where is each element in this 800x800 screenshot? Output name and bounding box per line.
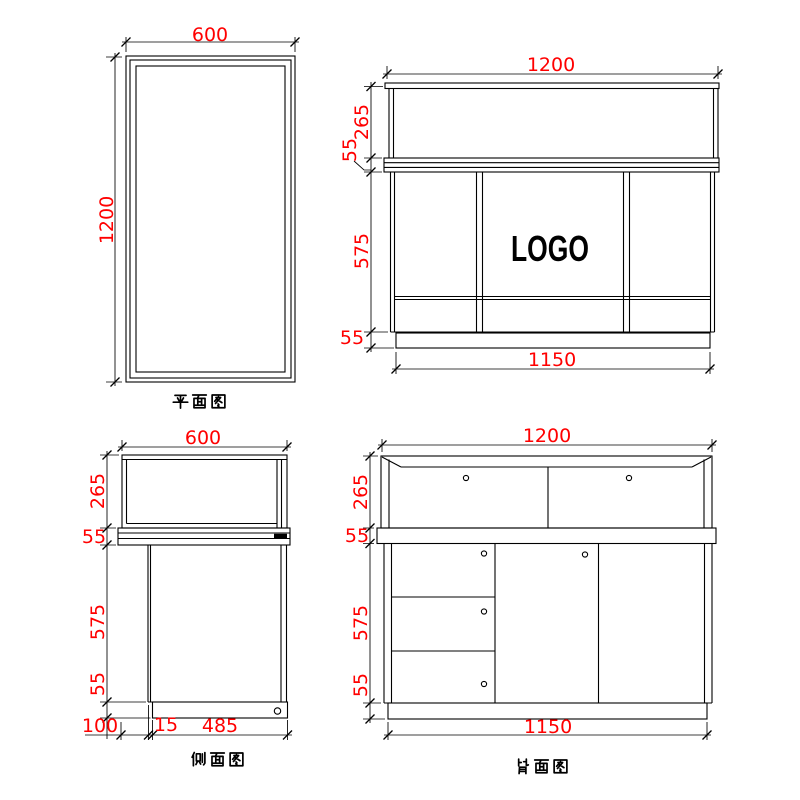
back-counter-height-dimension: 55 bbox=[345, 525, 369, 547]
side-plinth-height-dimension: 55 bbox=[87, 672, 109, 696]
side-counter-height-dimension: 55 bbox=[82, 526, 106, 548]
side-overhang-dimension: 100 bbox=[82, 715, 118, 737]
back-view-dimension-lines bbox=[363, 439, 717, 740]
back-extension-lines bbox=[363, 439, 712, 740]
side-plinth-hole bbox=[274, 708, 280, 714]
side-panel-dimension: 15 bbox=[154, 714, 178, 736]
back-sliding-door-knob-right bbox=[626, 475, 631, 480]
back-drawer-3-knob bbox=[481, 681, 486, 686]
side-body-panel bbox=[148, 545, 287, 702]
back-dim-ticks bbox=[366, 441, 717, 740]
plan-view-dimension-lines bbox=[106, 37, 300, 387]
front-top-width-dimension: 1200 bbox=[527, 54, 575, 76]
plan-dim-ticks bbox=[111, 38, 300, 387]
front-glass-height-dimension: 265 bbox=[351, 104, 373, 140]
front-glass-posts bbox=[389, 89, 718, 159]
plan-view-label-text: 平面图 bbox=[176, 393, 227, 413]
front-dim-ticks bbox=[367, 70, 723, 374]
back-drawer-1-knob bbox=[481, 551, 486, 556]
back-glass-height-dimension: 265 bbox=[350, 474, 372, 510]
side-extension-lines bbox=[100, 440, 288, 740]
back-glass-frame-lines bbox=[382, 457, 711, 528]
side-lock-detail bbox=[274, 534, 287, 539]
front-counter-height-dimension: 55 bbox=[339, 138, 361, 162]
back-drawer-2-knob bbox=[481, 609, 486, 614]
back-counter-band bbox=[377, 528, 716, 544]
back-body-panels bbox=[384, 544, 712, 704]
front-dim-lines bbox=[354, 74, 722, 369]
side-glass-frame-lines bbox=[122, 460, 287, 529]
side-glass-height-dimension: 265 bbox=[87, 473, 109, 509]
plan-view: 600 1200 平面图 bbox=[96, 24, 300, 413]
front-logo-text: LOGO bbox=[511, 228, 589, 269]
back-plinth-height-dimension: 55 bbox=[350, 673, 372, 697]
side-dim-lines bbox=[85, 447, 292, 739]
plan-width-dimension: 600 bbox=[192, 24, 228, 46]
side-dim-ticks bbox=[103, 443, 293, 740]
front-base-width-dimension: 1150 bbox=[528, 349, 576, 371]
back-door-knob bbox=[582, 552, 587, 557]
back-view-label-text: 背面图 bbox=[517, 757, 568, 777]
plan-extension-lines bbox=[106, 37, 295, 382]
back-body-height-dimension: 575 bbox=[350, 605, 372, 641]
plan-outer-frame bbox=[126, 56, 295, 382]
plan-glass-edge bbox=[136, 66, 285, 372]
technical-drawing-canvas: 600 1200 平面图 LOGO 1200 265 55 575 55 115 bbox=[0, 0, 800, 800]
front-counter-band bbox=[384, 158, 719, 172]
side-top-width-dimension: 600 bbox=[185, 427, 221, 449]
side-view-label-text: 侧面图 bbox=[193, 750, 244, 770]
side-glass-box bbox=[122, 455, 287, 528]
plan-height-dimension: 1200 bbox=[96, 196, 118, 244]
side-view: 600 265 55 575 55 100 15 485 侧面图 bbox=[82, 427, 292, 770]
side-counter-band-lines bbox=[118, 533, 290, 539]
back-view-outline bbox=[377, 456, 716, 719]
side-counter-band bbox=[118, 528, 290, 545]
plan-inner-frame bbox=[130, 60, 291, 378]
front-view-outline bbox=[384, 83, 719, 348]
back-base-width-dimension: 1150 bbox=[524, 716, 572, 738]
front-view-dimension-lines bbox=[354, 66, 723, 374]
back-sliding-door-knob-left bbox=[463, 475, 468, 480]
back-view: 1200 265 55 575 55 1150 背面图 bbox=[345, 425, 717, 777]
front-plinth-height-dimension: 55 bbox=[340, 327, 364, 349]
side-depth-dimension: 485 bbox=[202, 715, 238, 737]
front-body-height-dimension: 575 bbox=[351, 233, 373, 269]
back-dim-lines bbox=[370, 445, 716, 735]
side-body-height-dimension: 575 bbox=[87, 604, 109, 640]
front-extension-lines bbox=[364, 66, 718, 374]
front-counter-band-lines bbox=[384, 163, 719, 168]
front-top-bar bbox=[385, 83, 719, 89]
side-view-dimension-lines bbox=[85, 440, 292, 740]
side-view-outline bbox=[118, 455, 290, 718]
back-top-width-dimension: 1200 bbox=[523, 425, 571, 447]
plan-dim-lines bbox=[115, 42, 299, 386]
drawing-svg: 600 1200 平面图 LOGO 1200 265 55 575 55 115 bbox=[0, 0, 800, 800]
front-view: LOGO 1200 265 55 575 55 1150 bbox=[339, 54, 723, 374]
front-plinth bbox=[396, 333, 710, 348]
plan-view-outline bbox=[126, 56, 295, 382]
